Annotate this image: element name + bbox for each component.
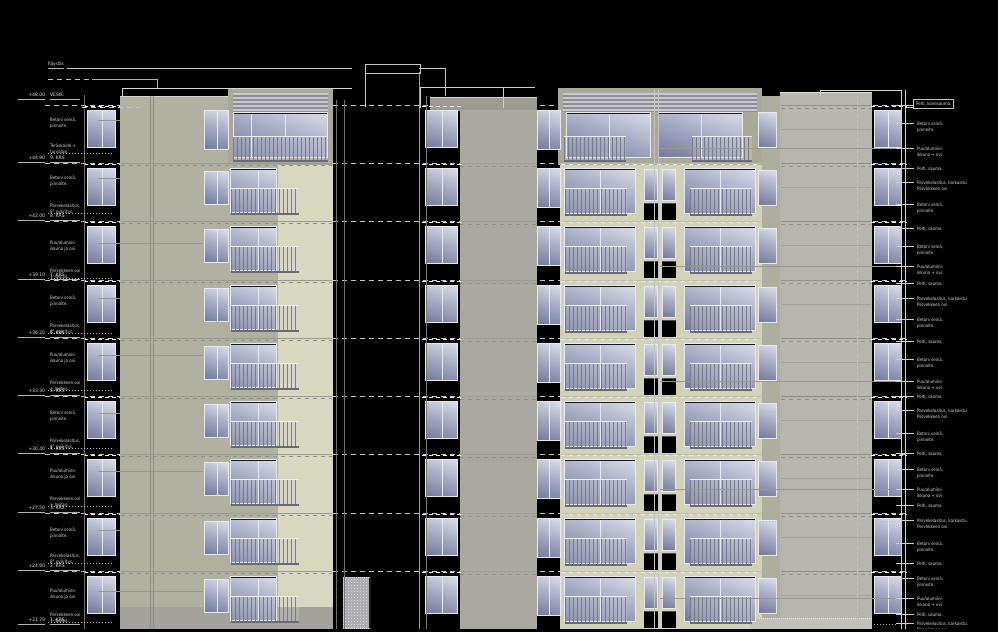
label-leader-long xyxy=(660,266,896,267)
annotation-label: Puu/alumiini- ikkuna + ovi. xyxy=(917,487,995,498)
label-leader-tick xyxy=(896,246,914,247)
label-leader xyxy=(98,178,120,179)
roof-outline xyxy=(365,72,366,107)
label-leader-dotted xyxy=(760,299,896,300)
label-leader-dotted xyxy=(48,563,112,564)
annotation-label: Puu/alumiini- ikkuna + ovi. xyxy=(917,379,995,390)
annotation-label: Pelti, konesauma. xyxy=(913,99,954,109)
annotation-label: Parvekelasitus, karkaistu. Parvekkeen ov… xyxy=(917,408,995,419)
annotation-label: Betoni seinä, pinnoite. xyxy=(917,244,995,255)
label-leader-dotted xyxy=(760,521,896,522)
annotation-label: Pelti, sauma. xyxy=(917,612,995,618)
label-leader-tick xyxy=(896,578,914,579)
annotation-label: Pelti, sauma. xyxy=(917,561,995,567)
annotation-label: Betoni seinä, pinnoite. xyxy=(917,317,995,328)
label-leader-dotted xyxy=(760,624,896,625)
annotation-label: Betoni seinä, pinnoite. xyxy=(917,431,995,442)
label-leader-long xyxy=(660,381,896,382)
label-leader-dotted xyxy=(48,333,112,334)
label-leader-tick xyxy=(896,204,914,205)
label-leader-tick xyxy=(896,319,914,320)
annotation-label: Pelti, sauma. xyxy=(917,281,995,287)
annotation-label: Pelti, sauma. xyxy=(917,166,995,172)
annotation-label: Pelti, sauma. xyxy=(917,451,995,457)
label-leader-tick xyxy=(896,489,914,490)
parapet-edge xyxy=(122,88,123,96)
annotation-label: Betoni seinä, pinnoite. xyxy=(50,410,96,421)
annotation-label: Puu/alumiini- ikkuna ja ovi. xyxy=(50,240,96,251)
annotation-label: Betoni seinä, pinnoite. xyxy=(917,121,995,132)
elevation-marker: +36.20 xyxy=(18,331,45,338)
roof-outline xyxy=(420,87,535,88)
label-leader-dotted xyxy=(760,183,896,184)
label-leader-tick xyxy=(896,453,914,454)
parapet-line xyxy=(122,88,352,89)
label-leader-tick xyxy=(896,614,914,615)
elevation-marker: +42.00 xyxy=(18,214,45,221)
label-leader-tick xyxy=(896,168,914,169)
label-leader-tick xyxy=(896,298,914,299)
annotation-label: Betoni seinä, pinnoite. xyxy=(50,117,96,128)
label-leader-tick xyxy=(896,469,914,470)
annotation-label: Puu/alumiini- ikkuna + ovi. xyxy=(917,146,995,157)
annotation-label: Betoni seinä, pinnoite. xyxy=(917,202,995,213)
label-leader xyxy=(98,530,120,531)
label-leader-dotted xyxy=(760,411,896,412)
roof-outline xyxy=(420,87,421,108)
floor-marker: 3. KRS xyxy=(50,506,80,513)
label-leader-tick xyxy=(896,228,914,229)
label-leader-dotted xyxy=(48,213,112,214)
elevation-marker: +21.70 xyxy=(18,618,45,625)
label-leader-dotted xyxy=(48,390,112,391)
annotation-label: Puu/alumiini- ikkuna + ovi. xyxy=(917,596,995,607)
annotation-label: Betoni seinä, pinnoite. xyxy=(50,295,96,306)
label-leader-dotted xyxy=(48,153,112,154)
annotation-label: Pelti, sauma. xyxy=(917,226,995,232)
elevation-marker: +48.00 xyxy=(18,93,45,100)
label-leader-tick xyxy=(896,543,914,544)
label-leader xyxy=(98,591,203,592)
label-leader-tick xyxy=(896,341,914,342)
leader-tick xyxy=(157,79,158,88)
annotation-label: Pelti, sauma. xyxy=(917,339,995,345)
annotation-label: Puu/alumiini- ikkuna ja ovi. xyxy=(50,588,96,599)
floor-marker: 8. KRS xyxy=(50,214,80,221)
label-leader-tick xyxy=(896,520,914,521)
label-leader-tick xyxy=(896,182,914,183)
roof-outline xyxy=(445,68,446,96)
label-leader-long xyxy=(660,489,896,490)
elevation-marker: +24.60 xyxy=(18,564,45,571)
label-leader-dotted xyxy=(48,506,112,507)
label-leader-tick xyxy=(896,359,914,360)
roof-outline xyxy=(503,87,504,108)
roof-outline-box xyxy=(365,64,421,74)
label-leader-tick xyxy=(896,148,914,149)
raystas-label: Räystäs xyxy=(48,61,64,69)
leader-dashed xyxy=(48,79,92,80)
annotations-layer: Räystäs +48.00VESIK.+44.909. KRS+42.008.… xyxy=(0,0,998,632)
label-leader-long xyxy=(660,148,896,149)
annotation-label: Parvekelasitus, karkaistu. Parvekkeen ov… xyxy=(917,180,995,191)
label-leader-tick xyxy=(896,123,914,124)
label-leader-tick xyxy=(896,505,914,506)
label-leader xyxy=(98,413,120,414)
elevation-marker: +33.30 xyxy=(18,389,45,396)
annotation-label: Betoni seinä, pinnoite. xyxy=(917,541,995,552)
label-leader-tick xyxy=(896,105,914,106)
label-leader-tick xyxy=(896,266,914,267)
annotation-label: Betoni seinä, pinnoite. xyxy=(50,527,96,538)
leader-line xyxy=(92,79,157,80)
label-leader-long xyxy=(660,598,896,599)
annotation-label: Pelti, sauma. xyxy=(917,394,995,400)
label-leader-tick xyxy=(896,598,914,599)
label-leader xyxy=(98,120,120,121)
roof-leader-right xyxy=(820,90,821,96)
annotation-label: Puu/alumiini- ikkuna + ovi. xyxy=(917,264,995,275)
label-leader xyxy=(98,298,120,299)
roof-leader-right xyxy=(820,90,901,91)
floor-marker: 2. KRS xyxy=(50,564,80,571)
floor-marker: VESIK. xyxy=(50,93,80,100)
label-leader-dotted xyxy=(48,622,112,623)
label-leader-tick xyxy=(896,410,914,411)
annotation-label: Parvekelasitus, karkaistu. Parvekkeen ov… xyxy=(917,296,995,307)
raystas-leader xyxy=(67,68,352,69)
label-leader-tick xyxy=(896,283,914,284)
elevation-marker: +44.90 xyxy=(18,156,45,163)
label-leader-tick xyxy=(896,563,914,564)
elevation-marker: +39.10 xyxy=(18,273,45,280)
annotation-label: Parvekelasitus, karkaistu. Parvekkeen ov… xyxy=(917,518,995,529)
annotation-label: Puu/alumiini- ikkuna ja ovi. xyxy=(50,468,96,479)
elevation-marker: +27.50 xyxy=(18,506,45,513)
annotation-label: Puu/alumiini- ikkuna ja ovi. xyxy=(50,352,96,363)
marker-leader-dashed xyxy=(82,107,140,108)
annotation-label: Betoni seinä, pinnoite. xyxy=(50,175,96,186)
label-leader-tick xyxy=(896,433,914,434)
annotation-label: Betoni seinä, pinnoite. xyxy=(917,576,995,587)
roof-outline xyxy=(419,68,445,69)
elevation-marker: +30.40 xyxy=(18,447,45,454)
elevation-drawing: Räystäs +48.00VESIK.+44.909. KRS+42.008.… xyxy=(0,0,998,632)
label-leader-tick xyxy=(896,381,914,382)
floor-marker: 9. KRS xyxy=(50,156,80,163)
annotation-label: Betoni seinä, pinnoite. xyxy=(917,357,995,368)
label-leader-tick xyxy=(896,396,914,397)
label-leader xyxy=(98,471,203,472)
label-leader-dotted xyxy=(48,448,112,449)
annotation-label: Betoni seinä, pinnoite. xyxy=(917,467,995,478)
annotation-label: Pelti, sauma. xyxy=(917,503,995,509)
label-leader-dotted xyxy=(48,278,112,279)
label-leader-tick xyxy=(896,623,914,624)
label-leader xyxy=(98,355,203,356)
label-leader xyxy=(98,243,203,244)
